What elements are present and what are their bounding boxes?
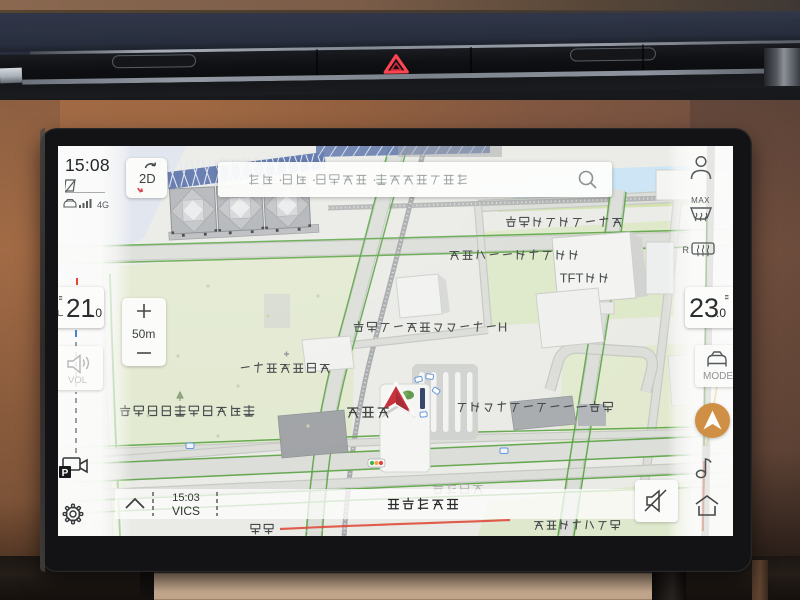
svg-text:50m: 50m <box>132 327 155 341</box>
svg-text:4G: 4G <box>97 200 109 210</box>
svg-text:21: 21 <box>66 293 95 323</box>
svg-text:MODE: MODE <box>703 371 733 382</box>
svg-text:P: P <box>62 468 69 479</box>
svg-text:.0: .0 <box>92 306 102 320</box>
svg-text:.0: .0 <box>716 306 726 320</box>
svg-text:2D: 2D <box>139 171 156 186</box>
svg-text:23: 23 <box>689 293 719 323</box>
svg-text:VOL: VOL <box>68 375 87 386</box>
